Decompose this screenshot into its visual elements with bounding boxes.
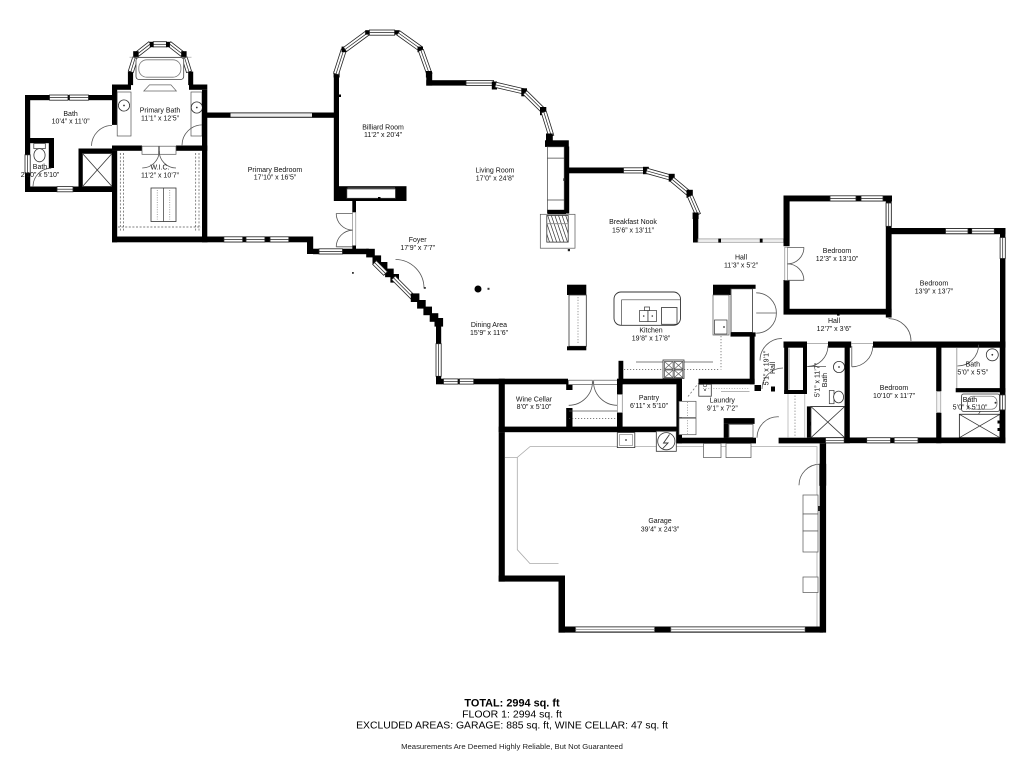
svg-text:5’1” x 19’1”: 5’1” x 19’1” (763, 350, 770, 385)
svg-text:8’0” x 5’10”: 8’0” x 5’10” (517, 404, 552, 411)
svg-text:Bath: Bath (63, 111, 78, 118)
svg-text:15’6” x 13’11”: 15’6” x 13’11” (612, 227, 655, 234)
svg-text:Dining Area: Dining Area (471, 322, 507, 329)
svg-text:Pantry: Pantry (639, 395, 660, 402)
svg-text:Bedroom: Bedroom (920, 281, 949, 288)
svg-text:17’10” x 16’5”: 17’10” x 16’5” (254, 175, 297, 182)
svg-text:EXCLUDED AREAS: GARAGE: 885 sq: EXCLUDED AREAS: GARAGE: 885 sq. ft, WINE… (356, 721, 668, 732)
svg-text:17’0” x 24’8”: 17’0” x 24’8” (476, 175, 515, 182)
svg-text:12’3” x 13’10”: 12’3” x 13’10” (816, 256, 859, 263)
svg-text:11’3” x 5’2”: 11’3” x 5’2” (724, 263, 759, 270)
svg-text:6’11” x 5’10”: 6’11” x 5’10” (630, 403, 669, 410)
svg-text:FLOOR 1: 2994 sq. ft: FLOOR 1: 2994 sq. ft (462, 709, 562, 721)
svg-text:12’7” x 3’6”: 12’7” x 3’6” (817, 326, 852, 333)
svg-text:Living Room: Living Room (476, 167, 515, 174)
svg-text:2’10” x 5’10”: 2’10” x 5’10” (21, 172, 60, 179)
svg-text:11’1” x 12’5”: 11’1” x 12’5” (141, 115, 180, 122)
svg-text:13’9” x 13’7”: 13’9” x 13’7” (915, 289, 954, 296)
svg-text:Bath: Bath (966, 362, 981, 369)
svg-text:Laundry: Laundry (710, 398, 736, 405)
svg-text:11’2” x 20’4”: 11’2” x 20’4” (364, 132, 403, 139)
svg-text:Kitchen: Kitchen (639, 327, 662, 334)
svg-text:Hall: Hall (735, 255, 748, 262)
svg-text:Bath: Bath (33, 164, 48, 171)
svg-text:17’9” x 7’7”: 17’9” x 7’7” (400, 245, 435, 252)
svg-text:Bath: Bath (963, 397, 978, 404)
svg-text:Hall: Hall (770, 362, 777, 375)
svg-text:15’9” x 11’6”: 15’9” x 11’6” (470, 330, 509, 337)
svg-text:5’0” x 5’5”: 5’0” x 5’5” (957, 369, 988, 376)
svg-text:Bath: Bath (822, 373, 829, 388)
svg-text:9’1” x 7’2”: 9’1” x 7’2” (707, 406, 738, 413)
svg-text:19’8” x 17’8”: 19’8” x 17’8” (632, 336, 671, 343)
svg-text:Bedroom: Bedroom (823, 248, 852, 255)
svg-text:Primary Bedroom: Primary Bedroom (248, 167, 303, 174)
svg-text:5’1” x 11’7”: 5’1” x 11’7” (814, 362, 821, 397)
svg-text:5’0” x 5’10”: 5’0” x 5’10” (953, 405, 988, 412)
svg-text:Bedroom: Bedroom (880, 385, 909, 392)
svg-text:Wine Cellar: Wine Cellar (516, 396, 553, 403)
svg-text:10’4” x 11’0”: 10’4” x 11’0” (52, 119, 91, 126)
svg-text:W.I.C.: W.I.C. (150, 164, 169, 171)
svg-text:Measurements Are Deemed Highly: Measurements Are Deemed Highly Reliable,… (401, 742, 623, 751)
svg-text:Billiard Room: Billiard Room (362, 124, 404, 131)
svg-text:Hall: Hall (828, 318, 841, 325)
svg-text:39’4” x 24’3”: 39’4” x 24’3” (641, 526, 680, 533)
svg-text:Primary Bath: Primary Bath (140, 108, 181, 115)
svg-text:11’2” x 10’7”: 11’2” x 10’7” (141, 173, 180, 180)
svg-text:Breakfast Nook: Breakfast Nook (609, 219, 657, 226)
svg-text:Garage: Garage (648, 518, 671, 525)
svg-text:10’10” x 11’7”: 10’10” x 11’7” (873, 393, 916, 400)
svg-text:Foyer: Foyer (409, 237, 428, 244)
